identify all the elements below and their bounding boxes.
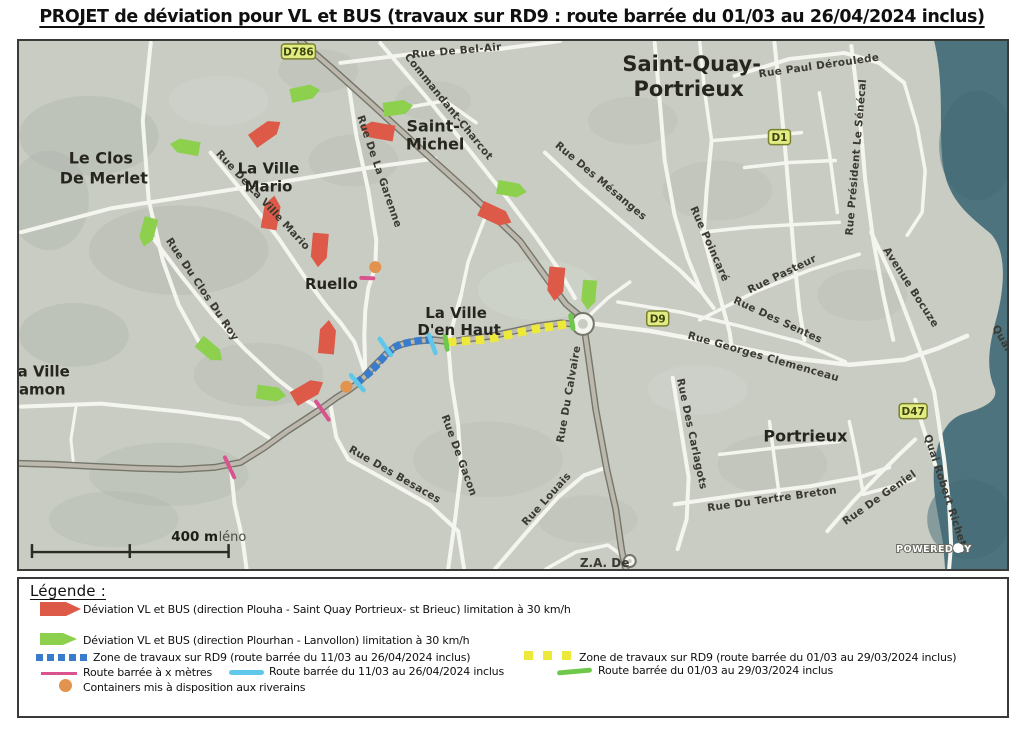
green-closure-line-icon: [557, 667, 592, 675]
yellow-workzone-dash-icon: [524, 651, 533, 660]
road-badge-label: D786: [283, 46, 314, 58]
town-label: La Ville: [19, 363, 70, 381]
page-title: PROJET de déviation pour VL et BUS (trav…: [0, 7, 1024, 27]
legend-containers-label: Containers mis à disposition aux riverai…: [83, 681, 305, 694]
legend-blue-workzone-label: Zone de travaux sur RD9 (route barrée du…: [93, 651, 470, 664]
pink-barrier-line-icon: [41, 672, 77, 675]
roundabout-island: [578, 319, 588, 329]
blue-workzone-dash-icon: [58, 654, 65, 661]
legend-panel: Légende : Déviation VL et BUS (direction…: [17, 577, 1009, 718]
town-label: Portrieux: [763, 426, 848, 445]
work-zone-yellow-dash: [531, 324, 541, 334]
town-label: Saint-: [406, 117, 459, 136]
scale-label: 400 m: [171, 530, 218, 545]
scan-noise: [413, 422, 563, 498]
legend-cyan-closure-label: Route barrée du 11/03 au 26/04/2024 incl…: [269, 665, 504, 678]
work-zone-yellow-dash: [544, 322, 554, 332]
town-label: Ruello: [305, 275, 358, 293]
legend-pink-barrier-label: Route barrée à x mètres: [83, 666, 212, 679]
za-label: Z.A. De: [580, 556, 629, 569]
green-deviation-arrow-icon: [39, 630, 79, 648]
blue-workzone-dash-icon: [80, 654, 87, 661]
town-label: La Ville: [238, 160, 300, 178]
map-canvas: Rue De Bel-AirCommandant-CharcotRue De L…: [19, 41, 1007, 569]
container-dot-icon: [59, 679, 72, 692]
powered-by-logo-dot: [953, 543, 963, 553]
town-label: Hamon: [19, 381, 66, 399]
scan-noise: [19, 303, 129, 367]
town-label: De Merlet: [60, 168, 148, 187]
work-zone-yellow-dash: [557, 320, 567, 330]
town-label: Portrieux: [634, 77, 745, 101]
town-label: D'en Haut: [417, 321, 500, 339]
road-badge-label: D1: [771, 132, 787, 144]
cyan-closure-line-icon: [229, 670, 264, 675]
town-label: Mario: [245, 177, 293, 195]
legend-yellow-workzone-label: Zone de travaux sur RD9 (route barrée du…: [579, 651, 956, 664]
scan-light: [648, 365, 748, 415]
town-label: Saint-Quay-: [622, 52, 761, 76]
deviation-map: Rue De Bel-AirCommandant-CharcotRue De L…: [17, 39, 1009, 571]
town-label: La Ville: [425, 304, 487, 322]
road-badge-label: D9: [650, 313, 666, 325]
town-label: Le Clos: [69, 149, 133, 168]
blue-workzone-dash-icon: [47, 654, 54, 661]
yellow-workzone-dash-icon: [562, 651, 571, 660]
scale-ghost-text: léno: [219, 530, 247, 545]
legend-green-closure-label: Route barrée du 01/03 au 29/03/2024 incl…: [598, 664, 833, 677]
container-dot: [369, 261, 381, 273]
scan-noise: [49, 491, 179, 547]
scan-light: [169, 76, 269, 126]
scan-noise: [663, 161, 773, 221]
work-zone-yellow-dash: [517, 327, 527, 337]
legend-red-deviation-label: Déviation VL et BUS (direction Plouha - …: [83, 603, 571, 616]
road-barrier-pink-tick: [359, 276, 375, 281]
work-zone-yellow-dash: [503, 330, 513, 340]
blue-workzone-dash-icon: [69, 654, 76, 661]
town-label: Michel: [406, 135, 464, 154]
blue-workzone-dash-icon: [36, 654, 43, 661]
container-dot: [340, 381, 352, 393]
yellow-workzone-dash-icon: [543, 651, 552, 660]
road-badge-label: D47: [902, 406, 925, 418]
red-deviation-arrow-icon: [39, 599, 83, 619]
legend-heading: Légende :: [30, 582, 106, 600]
legend-green-deviation-label: Déviation VL et BUS (direction Plourhan …: [83, 634, 469, 647]
